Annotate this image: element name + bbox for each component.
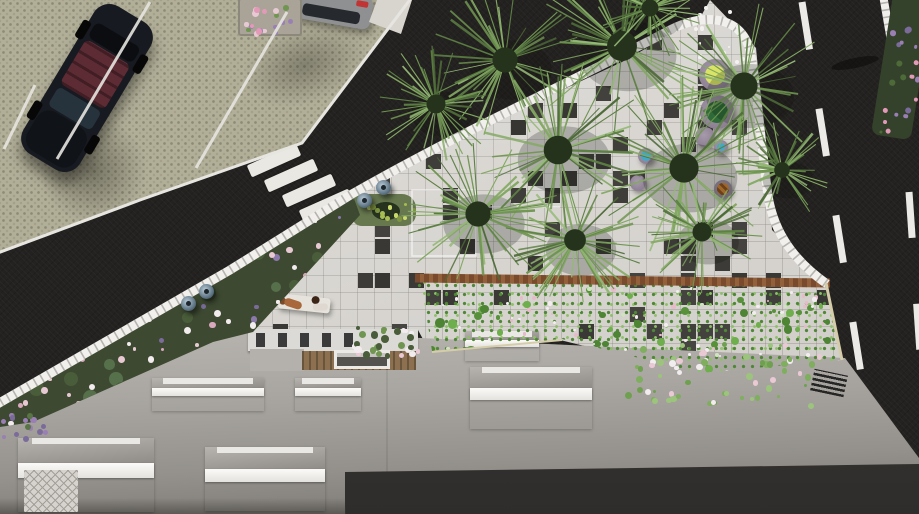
street-lamp-top bbox=[376, 180, 391, 195]
aerial-render-scene: Aerial top-down 3D architectural renderi… bbox=[0, 0, 919, 514]
street-lamp-top bbox=[199, 284, 214, 299]
street-lamps bbox=[0, 0, 919, 514]
street-lamp-top bbox=[181, 296, 196, 311]
street-lamp-top bbox=[357, 193, 372, 208]
